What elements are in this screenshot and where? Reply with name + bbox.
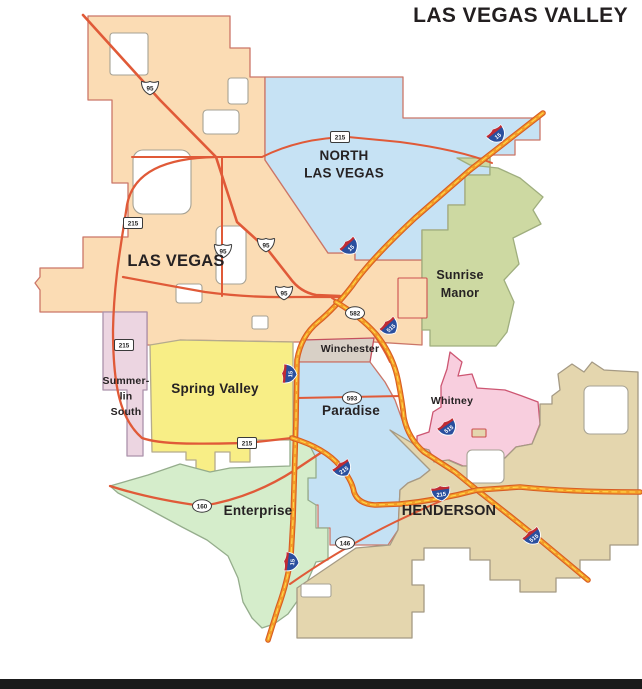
route-shield-number: 95 (262, 242, 270, 249)
route-shield-number: 593 (347, 395, 358, 402)
place-label-las-vegas: LAS VEGAS (127, 252, 224, 270)
oval-route-shield-160-icon: 160 (193, 500, 212, 512)
rect-route-shield-215-icon: 215 (124, 218, 143, 229)
rect-route-shield-215-icon: 215 (115, 340, 134, 351)
whitney-annex (472, 429, 486, 437)
route-shield-number: 95 (280, 290, 288, 297)
rect-route-shield-215-icon: 215 (331, 132, 350, 143)
route-shield-number: 95 (146, 85, 154, 92)
place-label-paradise: Paradise (322, 403, 380, 418)
oval-route-shield-146-icon: 146 (336, 537, 355, 549)
place-label-whitney: Whitney (431, 395, 473, 407)
route-shield-number: 146 (340, 540, 351, 547)
footer-bar (0, 679, 642, 689)
unincorporated-enclave (584, 386, 628, 434)
las-vegas-valley-map-page: 9595959521521521521558259316014615151515… (0, 0, 642, 689)
nellis-area (398, 278, 427, 318)
rect-route-shield-215-icon: 215 (238, 438, 257, 449)
route-shield-number: 215 (242, 440, 253, 447)
route-shield-number: 582 (350, 310, 361, 317)
route-shield-number: 215 (335, 134, 346, 141)
unincorporated-enclave (203, 110, 239, 134)
map-title: LAS VEGAS VALLEY (413, 4, 628, 28)
place-label-spring-valley: Spring Valley (171, 381, 259, 396)
oval-route-shield-582-icon: 582 (346, 307, 365, 319)
route-shield-number: 160 (197, 503, 208, 510)
place-label-henderson: HENDERSON (402, 503, 496, 519)
place-label-enterprise: Enterprise (224, 503, 293, 518)
place-label-winchester: Winchester (321, 343, 380, 355)
unincorporated-enclave (228, 78, 248, 104)
map-canvas: 9595959521521521521558259316014615151515… (0, 0, 642, 689)
region-spring-valley (150, 340, 293, 478)
unincorporated-enclave (467, 450, 504, 483)
unincorporated-enclave (252, 316, 268, 329)
route-shield-number: 215 (128, 220, 139, 227)
unincorporated-enclave (301, 584, 331, 597)
route-shield-number: 215 (119, 342, 130, 349)
unincorporated-enclave (110, 33, 148, 75)
